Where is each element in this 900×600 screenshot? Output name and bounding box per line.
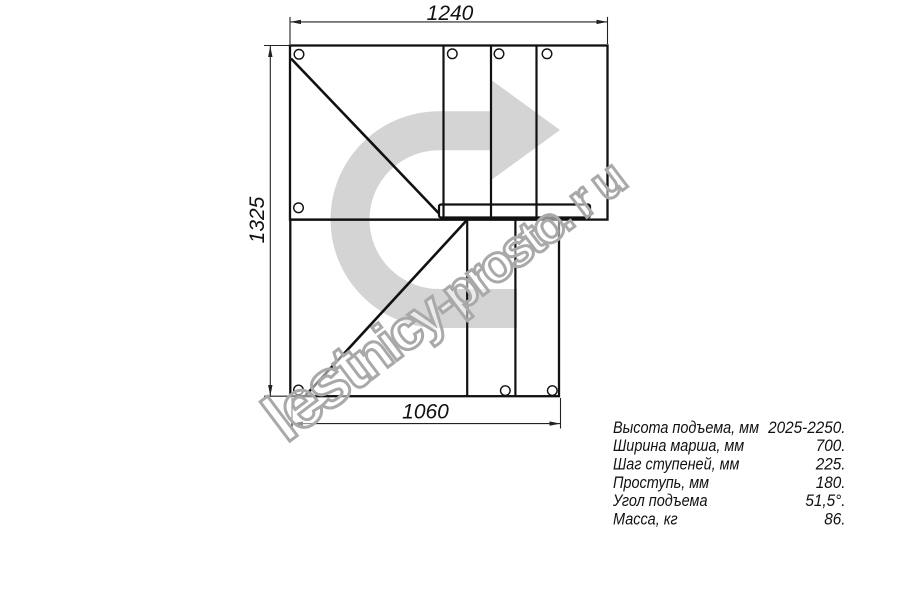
svg-text:1240: 1240 — [427, 2, 474, 25]
svg-text:700.: 700. — [816, 436, 846, 455]
svg-text:1325: 1325 — [246, 196, 269, 243]
svg-text:225.: 225. — [815, 455, 846, 474]
svg-text:Угол подъема: Угол подъема — [612, 492, 708, 510]
svg-text:180.: 180. — [816, 473, 846, 492]
svg-text:Высота подъема, мм: Высота подъема, мм — [613, 419, 759, 437]
svg-text:1060: 1060 — [402, 401, 449, 424]
svg-text:Проступь, мм: Проступь, мм — [613, 474, 709, 492]
svg-text:2025-2250.: 2025-2250. — [767, 418, 845, 437]
svg-text:86.: 86. — [824, 510, 845, 529]
svg-text:Шаг ступеней, мм: Шаг ступеней, мм — [613, 455, 740, 473]
svg-text:Масса, кг: Масса, кг — [613, 510, 678, 528]
svg-text:51,5°.: 51,5°. — [805, 491, 845, 510]
svg-text:Ширина марша, мм: Ширина марша, мм — [613, 437, 744, 455]
